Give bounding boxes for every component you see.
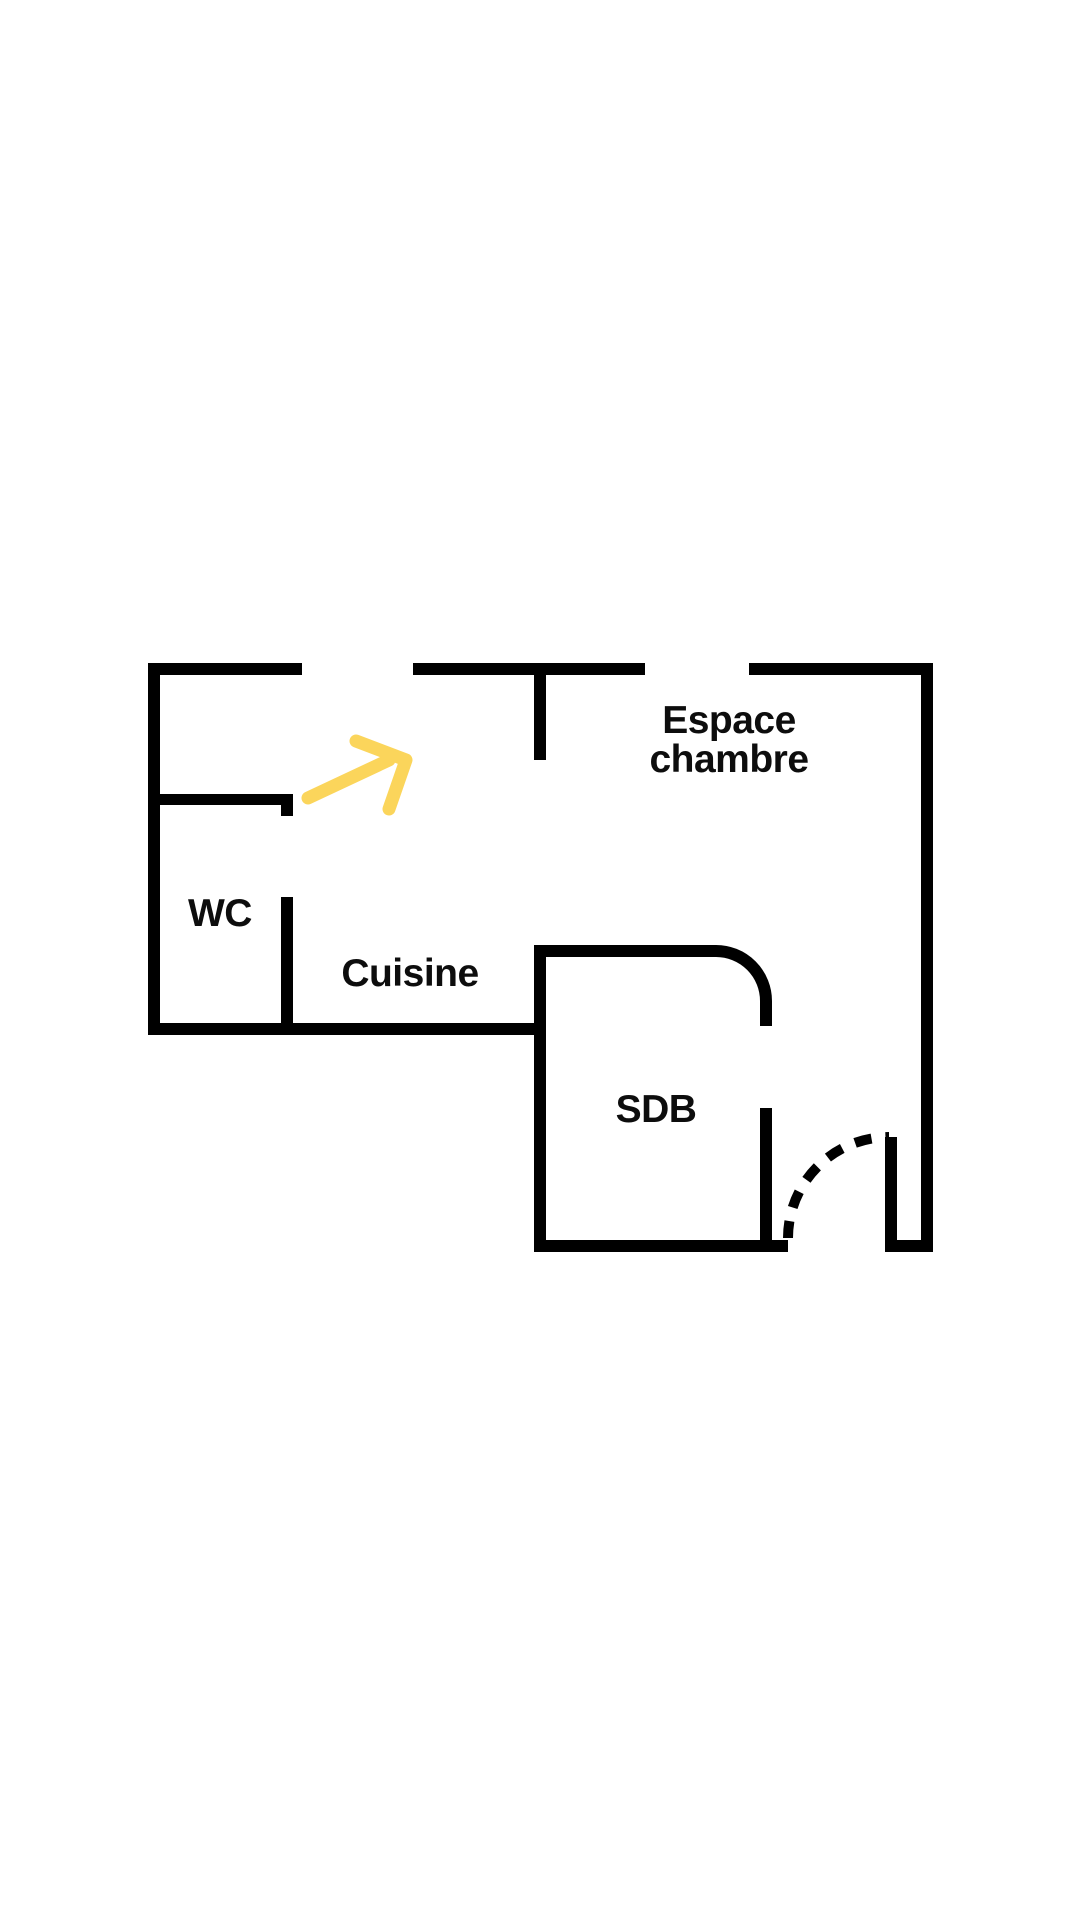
wall-wc-top-stub [281, 794, 293, 816]
wall-top-segment-right [749, 663, 933, 675]
wall-wc-top [148, 794, 293, 805]
entry-door-panel [885, 1137, 897, 1252]
wall-bedroom-partition [534, 663, 546, 760]
wall-wc-right [281, 897, 293, 1035]
bathroom-label: SDB [616, 1088, 697, 1131]
wall-top-segment-left [148, 663, 302, 675]
wall-sdb-left [534, 945, 546, 1252]
bedroom-label-line1: Espace [662, 699, 796, 742]
direction-arrow-icon [308, 741, 406, 809]
wall-sdb-top-rounded [534, 951, 766, 1026]
wall-sdb-right-lower [760, 1108, 772, 1252]
wall-right [921, 663, 933, 1252]
floor-plan-canvas: Espace chambre WC Cuisine SDB [0, 0, 1080, 1920]
wall-kitchen-bottom [148, 1023, 546, 1035]
floor-plan: Espace chambre WC Cuisine SDB [0, 0, 1080, 1920]
wall-left [148, 663, 160, 1035]
kitchen-label: Cuisine [341, 952, 478, 995]
wc-label: WC [188, 892, 252, 935]
arrow-shaft [308, 760, 389, 798]
wall-top-segment-middle [413, 663, 645, 675]
wall-bottom-sdb [534, 1240, 788, 1252]
bedroom-label-line2: chambre [649, 738, 808, 781]
door-swing-arc [788, 1137, 889, 1238]
